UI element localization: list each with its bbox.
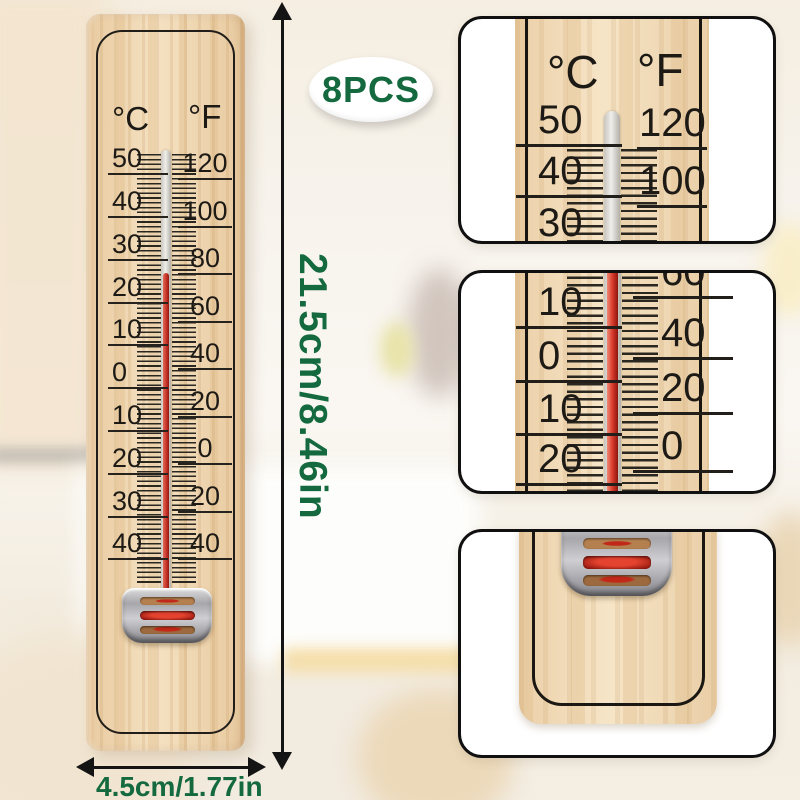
quantity-badge-label: 8PCS [322,69,420,110]
fahrenheit-unit-label: °F [188,98,221,136]
height-arrow-line [281,16,284,756]
celsius-scale-mark: 10 [108,312,168,346]
celsius-scale-mark: 40 [108,184,168,218]
celsius-scale-mark: 0 [516,332,622,383]
clip-slot [583,538,651,549]
clip-slot [140,626,195,634]
celsius-scale-mark: 10 [516,278,622,329]
celsius-scale-mark: 30 [108,484,168,518]
height-dimension-label: 21.5cm/8.46in [288,236,334,536]
celsius-scale-mark: 40 [108,526,168,560]
celsius-scale-mark: 20 [108,270,168,304]
product-image: °C °F 50 40 30 20 10 0 10 20 30 40 120 1… [0,0,800,800]
fahrenheit-scale-mark: 120 [637,99,707,150]
detail-panel-top: °C °F 50 40 30 120 100 [458,16,776,244]
fahrenheit-scale-mark: 40 [178,336,232,370]
quantity-badge: 8PCS [309,57,433,122]
arrow-up-icon [272,2,292,20]
thermometer-board: °C °F 50 40 30 20 10 0 10 20 30 40 120 1… [86,14,245,751]
fahrenheit-scale-mark: 40 [178,526,232,560]
width-dimension-label: 4.5cm/1.77in [96,771,246,800]
bulb-clip [122,588,212,643]
detail-panel-middle: 10 0 10 20 60 40 20 0 [458,270,776,494]
width-arrow-line [90,766,252,769]
celsius-unit-label: °C [547,45,599,99]
detail-panel-bottom [458,529,776,758]
clip-slot [583,575,651,586]
fahrenheit-scale-mark: 120 [178,146,232,180]
fahrenheit-scale-mark: 40 [633,309,733,360]
fahrenheit-scale-mark: 20 [178,384,232,418]
fahrenheit-scale-mark: 60 [178,289,232,323]
fahrenheit-scale-mark: 100 [178,194,232,228]
clip-slot [140,597,195,605]
clip-slot-bulb [140,611,195,620]
celsius-scale-mark: 0 [108,355,168,389]
zoom-wood-board [519,529,717,724]
fahrenheit-scale-mark: 100 [637,157,707,208]
celsius-scale-mark: 50 [108,141,168,175]
celsius-scale-mark: 30 [516,199,622,244]
arrow-left-icon [76,757,94,777]
fahrenheit-scale-mark: 20 [178,479,232,513]
fahrenheit-scale-mark: 80 [178,241,232,275]
celsius-scale-mark: 10 [516,385,622,436]
arrow-down-icon [272,752,292,770]
celsius-scale-mark: 50 [516,96,622,147]
celsius-scale-mark: 30 [108,227,168,261]
fahrenheit-scale-mark: 60 [633,270,733,299]
zoom-wood-strip: 10 0 10 20 60 40 20 0 [515,270,709,494]
fahrenheit-scale-mark: 20 [633,364,733,415]
celsius-scale-mark: 20 [516,435,622,486]
clip-slot-bulb [583,556,651,569]
celsius-unit-label: °C [112,100,149,138]
fahrenheit-scale-mark: 0 [178,431,232,465]
celsius-scale-mark: 40 [516,147,622,198]
fahrenheit-unit-label: °F [637,43,684,97]
background-plant [380,322,414,377]
celsius-scale-mark: 20 [108,441,168,475]
zoom-wood-strip: °C °F 50 40 30 120 100 [515,16,709,244]
bulb-clip-zoom [561,529,672,596]
celsius-scale-mark: 10 [108,398,168,432]
fahrenheit-scale-mark: 0 [633,422,733,473]
